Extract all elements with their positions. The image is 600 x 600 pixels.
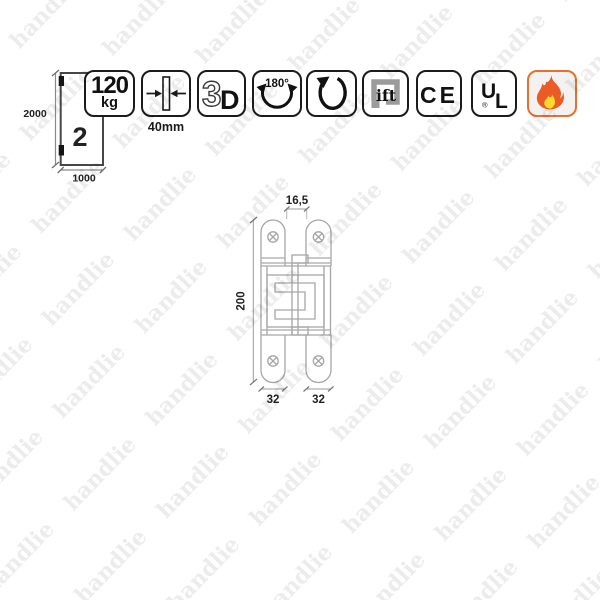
opening-angle-label: 180° <box>265 78 289 90</box>
three-d-digit: 3 <box>202 75 221 114</box>
hinge-outline <box>261 220 331 383</box>
ul-certification-badge: U L ® <box>471 70 517 117</box>
watermark-text: handlie <box>523 469 600 553</box>
ce-mark-icon: CE <box>418 72 460 115</box>
watermark-text: handlie <box>551 0 600 7</box>
watermark-text: handlie <box>119 162 202 246</box>
load-capacity-badge: 120 kg <box>84 70 135 117</box>
center-width-dimension: 16,5 <box>284 195 310 219</box>
watermark-text: handlie <box>283 0 366 76</box>
watermark-text: handlie <box>419 369 502 453</box>
three-d-letter: D <box>220 85 240 115</box>
watermark-text: handlie <box>441 554 524 600</box>
watermark-text: handlie <box>162 532 245 600</box>
door-thickness-arrows-icon <box>143 72 189 115</box>
screw-icon <box>313 232 323 242</box>
watermark-text: handlie <box>0 516 60 600</box>
watermark-text: handlie <box>337 454 420 538</box>
watermark-text: handlie <box>97 0 180 61</box>
hinge-spec-sheet: 2000 2 1000 120 kg 40mm 3 D <box>0 0 600 600</box>
watermark-text: handlie <box>583 200 600 284</box>
flame-icon <box>529 72 575 115</box>
hinge-technical-drawing: 16,5 200 32 32 <box>235 188 345 418</box>
hinge-height-dimension: 200 <box>236 217 258 385</box>
screw-icon <box>268 356 278 366</box>
opening-angle-badge: 180° <box>252 70 302 117</box>
watermark-text: handlie <box>533 562 600 600</box>
watermark-text: handlie <box>397 184 480 268</box>
ul-logo-icon: U L ® <box>473 72 515 115</box>
watermark-text: handlie <box>0 424 49 508</box>
watermark-text: handlie <box>152 439 235 523</box>
screw-icon <box>313 356 323 366</box>
ce-label: CE <box>420 82 458 108</box>
watermark-text: handlie <box>512 377 595 461</box>
door-thickness-caption: 40mm <box>141 120 191 134</box>
door-thickness-badge <box>141 70 191 117</box>
watermark-text: handlie <box>59 432 142 516</box>
watermark-text: handlie <box>255 539 338 600</box>
hinge-count-label: 2 <box>72 122 87 152</box>
watermark-text: handlie <box>490 192 573 276</box>
watermark-text: handlie <box>572 107 600 191</box>
load-capacity-value: 120 <box>91 76 128 96</box>
watermark-text: handlie <box>5 0 88 54</box>
ce-marking-badge: CE <box>416 70 462 117</box>
watermark-text: handlie <box>190 0 273 69</box>
watermark-text: handlie <box>0 54 6 138</box>
ift-certification-badge: ift <box>362 70 409 117</box>
ul-registered-mark: ® <box>482 101 488 110</box>
rotation-badge <box>306 70 357 117</box>
door-width-label: 1000 <box>72 173 96 185</box>
watermark-text: handlie <box>130 254 213 338</box>
door-width-dimension: 1000 <box>58 167 106 185</box>
opening-angle-arc-icon: 180° <box>254 72 300 115</box>
watermark-text: handlie <box>430 462 513 546</box>
watermark-text: handlie <box>37 247 120 331</box>
watermark-text: handlie <box>348 547 431 600</box>
watermark-text: handlie <box>141 347 224 431</box>
rotation-arrow-icon <box>308 72 355 115</box>
watermark-text: handlie <box>0 332 38 416</box>
load-capacity-unit: kg <box>101 96 118 111</box>
fire-rating-badge <box>527 70 577 117</box>
hinge-position-mark-top <box>59 76 64 86</box>
right-leaf-width-label: 32 <box>312 394 325 406</box>
door-height-dimension: 2000 <box>23 70 59 168</box>
watermark-text: handlie <box>244 447 327 531</box>
watermark-text: handlie <box>0 147 16 231</box>
hinge-height-label: 200 <box>236 291 248 310</box>
watermark-text: handlie <box>0 239 27 323</box>
three-d-icon: 3 D <box>199 72 244 115</box>
watermark-text: handlie <box>408 277 491 361</box>
left-leaf-width-label: 32 <box>267 394 280 406</box>
ul-letter-l: L <box>495 90 508 113</box>
center-width-label: 16,5 <box>286 195 309 207</box>
ift-logo-icon: ift <box>364 72 407 115</box>
watermark-text: handlie <box>501 285 584 369</box>
watermark-text: handlie <box>48 339 131 423</box>
door-height-label: 2000 <box>23 108 47 120</box>
ift-label: ift <box>376 86 397 105</box>
leaf-width-dimensions: 32 32 <box>259 387 334 407</box>
watermark-text: handlie <box>594 292 600 376</box>
watermark-text: handlie <box>70 524 153 600</box>
screw-icon <box>268 232 278 242</box>
hinge-position-mark-bottom <box>59 145 64 156</box>
adjustment-3d-badge: 3 D <box>197 70 246 117</box>
